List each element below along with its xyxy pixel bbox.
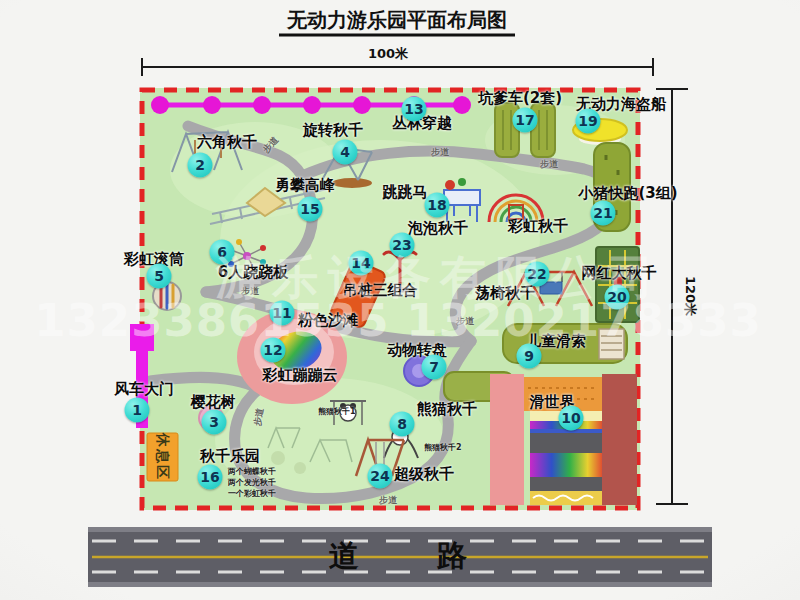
page-title: 无动力游乐园平面布局图: [279, 7, 515, 34]
badge-19: 19: [576, 109, 601, 134]
road-label: 道 路: [329, 536, 501, 577]
label-jumping-horse: 跳跳马: [383, 183, 428, 202]
label-hex-swing: 六角秋千: [197, 133, 257, 152]
badge-12: 12: [261, 338, 286, 363]
badge-22: 22: [525, 262, 550, 287]
trail-label: 步道: [431, 146, 449, 159]
park-layout-map: 无动力游乐园平面布局图 100米 120米 风车大门 六角秋千 樱花树 旋转秋千…: [0, 0, 800, 600]
badge-21: 21: [591, 201, 616, 226]
trail-label: 步道: [241, 285, 259, 298]
badge-2: 2: [188, 153, 213, 178]
height-dimension-label: 120米: [681, 276, 699, 316]
badge-14: 14: [349, 251, 374, 276]
badge-15: 15: [298, 197, 323, 222]
trail-label: 步道: [379, 494, 397, 507]
badge-16: 16: [198, 465, 223, 490]
label-climbing: 勇攀高峰: [275, 176, 335, 195]
swing-note-1: 两个蝴蝶秋千: [228, 466, 276, 477]
badge-7: 7: [422, 355, 447, 380]
trail-label: 步道: [260, 134, 282, 156]
rest-area-label: 休息区: [153, 433, 171, 481]
label-piggy-run: 小猪快跑(3组): [578, 184, 677, 203]
label-panda-swing: 熊猫秋千: [417, 400, 477, 419]
label-bubble-swing: 泡泡秋千: [408, 219, 468, 238]
width-dimension-label: 100米: [368, 45, 408, 63]
badge-13: 13: [402, 97, 427, 122]
label-panda2: 熊猫秋千2: [424, 442, 462, 453]
swing-note-3: 一个彩虹秋千: [228, 488, 276, 499]
label-hanging-pile: 吊桩三组合: [343, 281, 418, 300]
trail-label: 步道: [540, 158, 558, 171]
badge-4: 4: [333, 140, 358, 165]
badge-24: 24: [368, 464, 393, 489]
label-pink-beach: 粉色沙滩: [298, 311, 358, 330]
badge-9: 9: [517, 344, 542, 369]
badge-20: 20: [605, 285, 630, 310]
badge-11: 11: [270, 301, 295, 326]
badge-8: 8: [390, 412, 415, 437]
swing-note-2: 两个发光秋千: [228, 477, 276, 488]
label-rainbow-swing: 彩虹秋千: [508, 217, 568, 236]
trail-label: 步道: [251, 407, 267, 427]
badge-1: 1: [125, 398, 150, 423]
badge-3: 3: [202, 410, 227, 435]
title-text: 无动力游乐园平面布局图: [279, 8, 515, 37]
badge-23: 23: [390, 233, 415, 258]
label-rotating-swing: 旋转秋千: [303, 121, 363, 140]
label-swing-chair: 荡椅秋千: [475, 284, 535, 303]
trail-label: 步道: [456, 315, 474, 328]
label-super-swing: 超级秋千: [394, 465, 454, 484]
label-big-swing: 网红大秋千: [582, 264, 657, 283]
badge-18: 18: [425, 193, 450, 218]
label-seesaw: 6人跷跷板: [218, 263, 288, 282]
label-panda1: 熊猫秋千1: [318, 406, 356, 417]
badge-17: 17: [513, 108, 538, 133]
label-swing-park: 秋千乐园: [200, 447, 260, 466]
badge-5: 5: [147, 264, 172, 289]
label-cart: 坑爹车(2套): [478, 89, 562, 108]
badge-10: 10: [559, 406, 584, 431]
badge-6: 6: [210, 240, 235, 265]
text-layer: 无动力游乐园平面布局图 100米 120米 风车大门 六角秋千 樱花树 旋转秋千…: [0, 0, 800, 600]
label-gate: 风车大门: [114, 380, 174, 399]
label-bounce-cloud: 彩虹蹦蹦云: [263, 366, 338, 385]
